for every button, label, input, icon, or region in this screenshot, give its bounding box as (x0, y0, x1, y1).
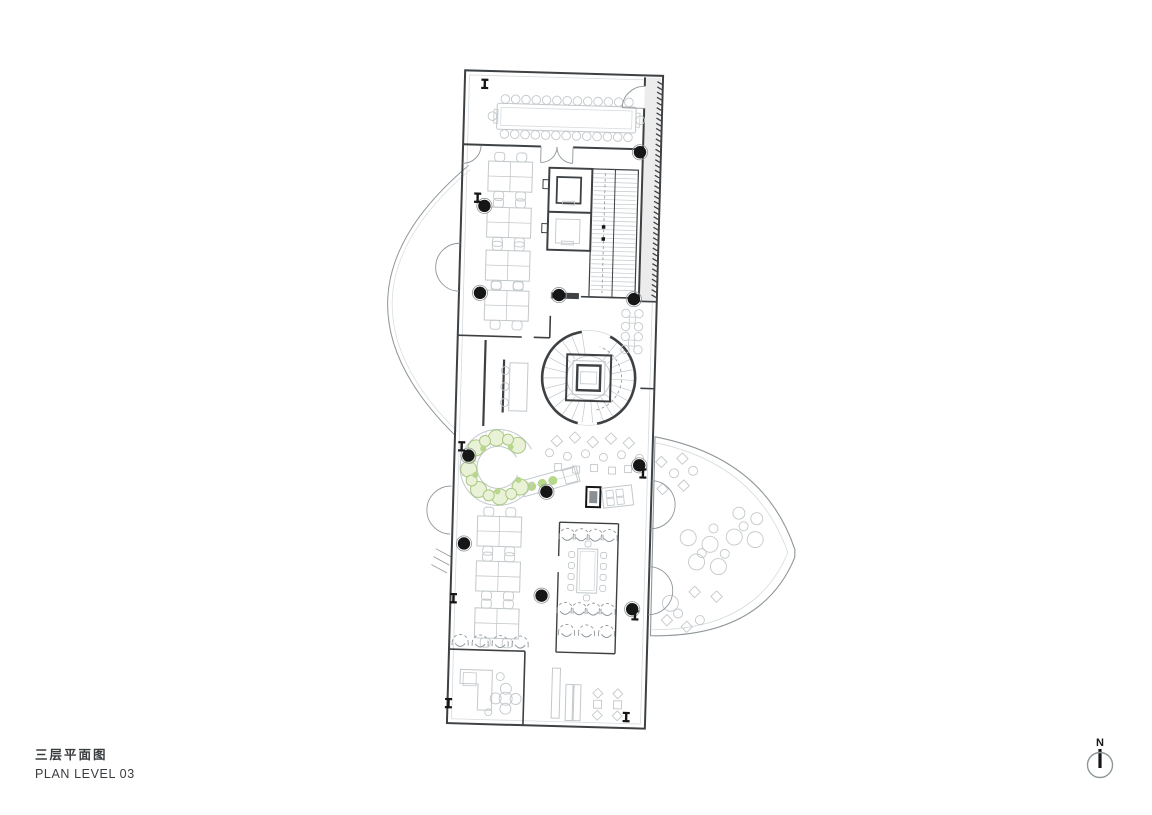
fan-terrace (649, 437, 798, 640)
title-block: 三层平面图 PLAN LEVEL 03 (35, 744, 135, 781)
north-arrow-graphic: N (1082, 735, 1118, 785)
spiral-stair (540, 329, 638, 427)
north-label: N (1096, 737, 1104, 749)
plan-title-en: PLAN LEVEL 03 (35, 767, 135, 781)
north-arrow: N (1082, 735, 1118, 785)
stair-elevator-core (540, 168, 639, 299)
fire-hose-symbols (445, 78, 658, 723)
floor-plan-drawing (0, 0, 1152, 815)
planter-ring (459, 428, 535, 506)
plan-title-cn: 三层平面图 (35, 744, 135, 763)
